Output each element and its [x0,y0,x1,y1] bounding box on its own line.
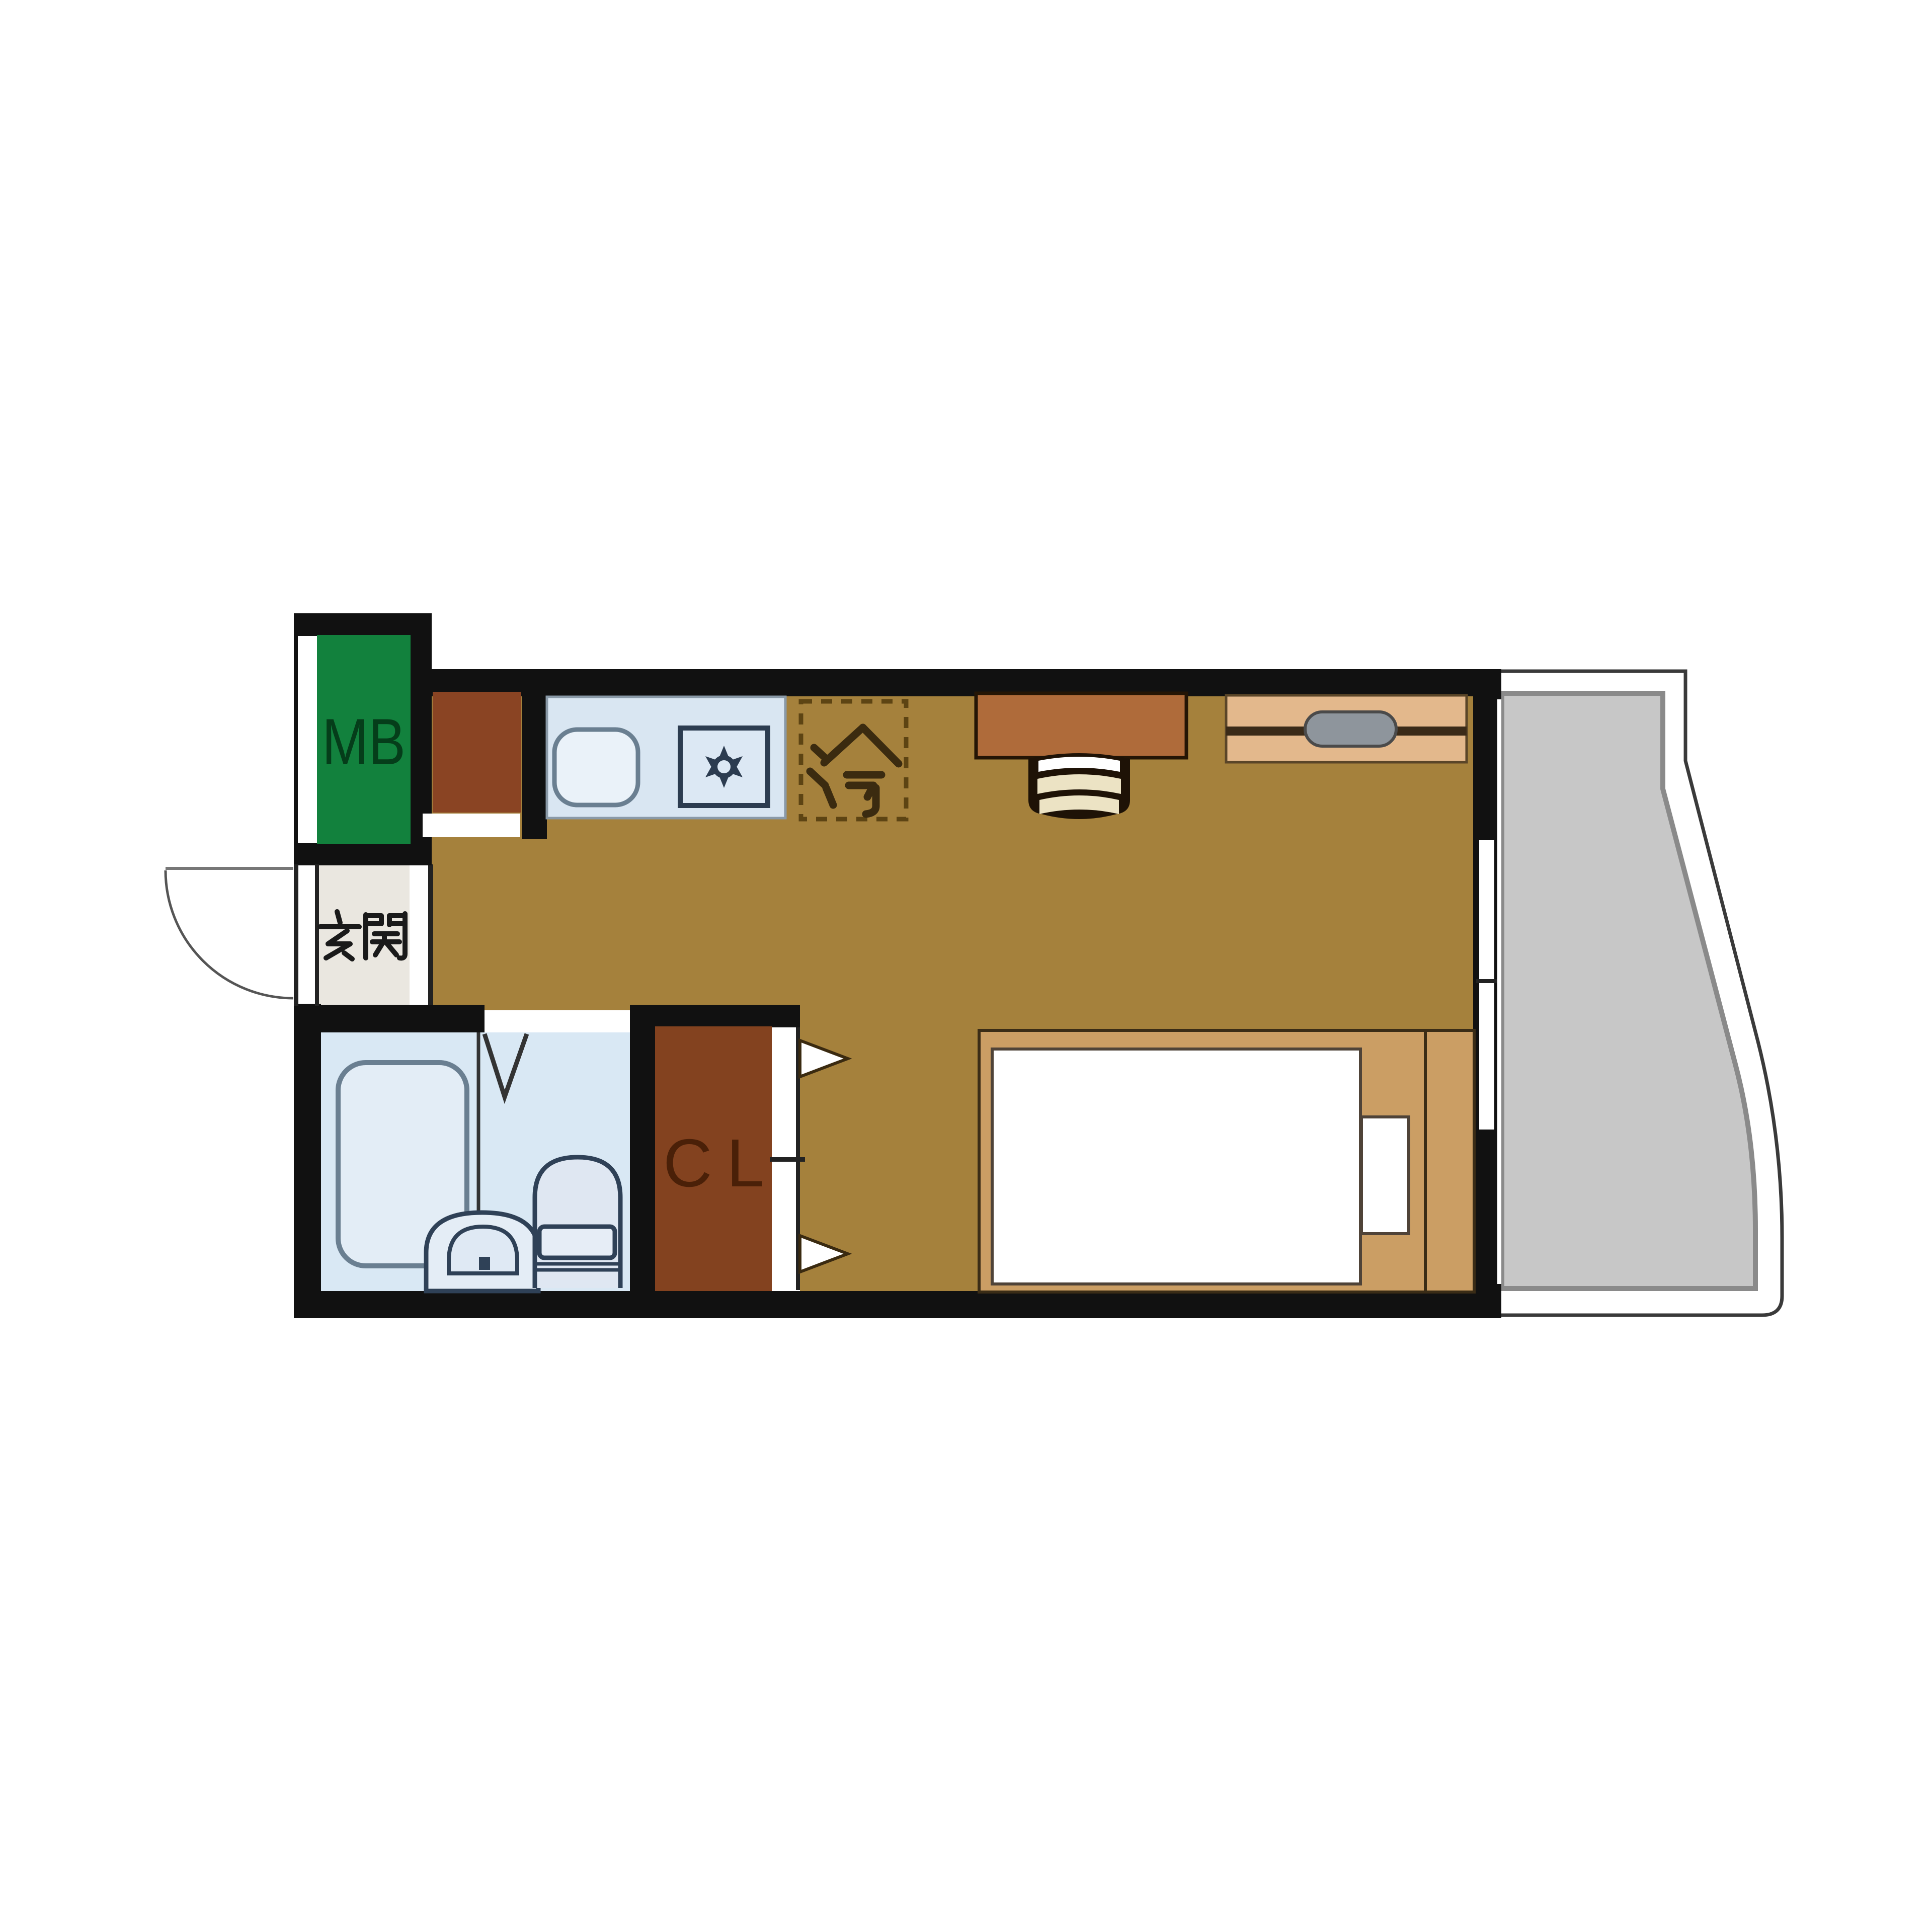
svg-text:C: C [663,1125,712,1201]
svg-text:L: L [727,1125,764,1201]
svg-text:MB: MB [322,705,406,778]
